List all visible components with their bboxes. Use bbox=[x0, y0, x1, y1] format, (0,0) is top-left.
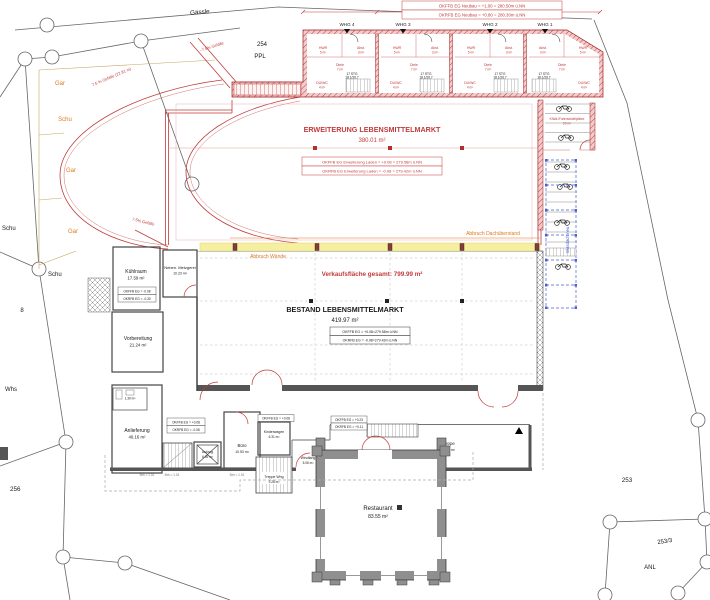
anlieferung-level2: OKRFB EG = -0.08 bbox=[172, 428, 200, 432]
aufzug-area: 6.39 m² bbox=[202, 455, 213, 459]
room-diele: Diele bbox=[484, 63, 492, 67]
glasdach-label: Glasdach neu bbox=[565, 226, 570, 253]
bicycle-icon bbox=[555, 220, 570, 225]
anlieferung-label: Anlieferung bbox=[124, 428, 150, 434]
treppe-level-box: OKFFB EG = +0.23 OKRFB EG = +0.11 bbox=[331, 416, 367, 430]
glass-roof-new: Glasdach neu bbox=[545, 159, 577, 309]
room-diele: Diele bbox=[558, 63, 566, 67]
ramp-and-garages: Gar Schu Gar Gar 7.5 % Gefälle (22.81 m)… bbox=[39, 38, 300, 269]
room-abst-area: 3 m² bbox=[432, 51, 438, 55]
kinderwagen-label: Kinderwagen bbox=[264, 430, 284, 434]
plot-anl: ANL bbox=[644, 565, 656, 571]
wc-area: 1.39 m² bbox=[125, 397, 136, 401]
erweiterung-title: ERWEITERUNG LEBENSMITTELMARKT bbox=[304, 125, 441, 134]
buero-label: Büro bbox=[237, 443, 247, 448]
restaurant-building: Restaurant 83.55 m² bbox=[312, 436, 450, 585]
anlieferung-level-box: OKFFB EG = +0.08 OKRFB EG = -0.08 bbox=[167, 418, 205, 433]
slope-bottom-label: 7.5% Gefälle bbox=[132, 216, 156, 227]
slope-curve-label: 7.5 % Gefälle (22.81 m) bbox=[91, 66, 132, 87]
bestand-right-wall bbox=[537, 251, 543, 390]
whg1-label: WHG 1 bbox=[537, 22, 553, 27]
room-hwr: HWR bbox=[467, 46, 476, 50]
room-duwc-area: 4 m² bbox=[393, 86, 399, 90]
erweiterung-level-box: OKFFB EG Erweiterung Laden = +0.08 = 279… bbox=[302, 157, 442, 175]
brh-note-2: Brh = 1.01 bbox=[165, 473, 180, 477]
kuehlraum-level1: OKFFB EG = -0.08 bbox=[123, 289, 150, 293]
room-hwr: HWR bbox=[579, 46, 588, 50]
bike-parking-label: KiWa-/Fahrradstellplätze bbox=[550, 117, 585, 121]
room-duwc: DU/WC bbox=[316, 81, 328, 85]
main-entrance-arrow bbox=[515, 427, 523, 434]
kinderwagen-area: 6.31 m² bbox=[269, 435, 280, 439]
room-diele: Diele bbox=[410, 63, 418, 67]
neighbor-wall-fragment bbox=[0, 447, 8, 460]
bestand-hall: BESTAND LEBENSMITTELMARKT 419.97 m² OKFF… bbox=[197, 251, 543, 434]
unit-stair bbox=[420, 79, 444, 92]
neubau-level-box: OKFFB EG Neubau = +1.00 = 280.50m ü.NN O… bbox=[402, 1, 562, 19]
abbruch-dach-label: Abbruch Dachüberstand bbox=[466, 231, 520, 237]
bicycle-icon bbox=[557, 106, 572, 111]
neubau-level-line2: OKRFB EG Neubau = +0.80 = 280.30m ü.NN bbox=[439, 13, 526, 18]
restaurant-area: 83.55 m² bbox=[368, 514, 388, 520]
kuehlraum-label: Kühlraum bbox=[125, 269, 146, 275]
metzgerei-label: Neben. Metzgerei bbox=[164, 265, 196, 270]
restaurant-label: Restaurant bbox=[363, 506, 393, 512]
demolition-zone: Abbruch Dachüberstand Abbruch Wände Verk… bbox=[200, 231, 540, 278]
garage-label-4: Gar bbox=[68, 229, 78, 235]
whg2-label: WHG 2 bbox=[482, 22, 498, 27]
aufzug-label: Aufzug bbox=[202, 450, 213, 454]
garage-label-2: Schu bbox=[58, 117, 72, 123]
room-diele-area: 7 m² bbox=[485, 68, 491, 72]
verkaufsflaeche-label: Verkaufsfläche gesamt: 799.99 m² bbox=[322, 271, 423, 278]
neubau-apartments: OKFFB EG Neubau = +1.00 = 280.50m ü.NN O… bbox=[232, 1, 603, 97]
whg4-label: WHG 4 bbox=[339, 22, 355, 27]
bicycle-icon bbox=[559, 135, 574, 140]
windfang-area: 5.06 m² bbox=[303, 461, 314, 465]
bicycle-icon bbox=[558, 184, 573, 189]
room-duwc-area: 4 m² bbox=[467, 86, 473, 90]
anlieferung-area: 40.16 m² bbox=[129, 435, 147, 440]
service-rooms: Kühlraum 17.59 m² OKFFB EG = -0.08 OKRFB… bbox=[88, 247, 532, 477]
bestand-area: 419.97 m² bbox=[331, 318, 358, 324]
neubau-level-line1: OKFFB EG Neubau = +1.00 = 280.50m ü.NN bbox=[439, 4, 525, 9]
room-diele-area: 7 m² bbox=[337, 68, 343, 72]
brh-note-3: Brh = 1.01 bbox=[230, 473, 245, 477]
erweiterung-hall: ERWEITERUNG LEBENSMITTELMARKT 380.01 m² … bbox=[165, 100, 595, 245]
treppe-level1: OKFFB EG = +0.23 bbox=[335, 418, 363, 422]
plot-253-3: 253/3 bbox=[657, 538, 673, 546]
parcel-number: 254 bbox=[257, 42, 268, 48]
buero-area: 10.53 m² bbox=[235, 450, 250, 454]
room-duwc: DU/WC bbox=[390, 81, 402, 85]
kinderwagen-level1: OKFFB EG = +0.08 bbox=[262, 417, 290, 421]
erweiterung-level-line2: OKRFB EG Erweiterung Laden = -0.08 = 279… bbox=[322, 169, 421, 174]
room-duwc-area: 4 m² bbox=[319, 86, 325, 90]
slope-top-label: ~7.5% Gefälle bbox=[199, 40, 225, 53]
room-abst: Abst. bbox=[539, 46, 547, 50]
windfang-label: Windfang bbox=[301, 456, 316, 460]
plot-8: 8 bbox=[20, 308, 24, 314]
abbruch-waende-label: Abbruch Wände bbox=[250, 254, 286, 260]
kuehlraum-area: 17.59 m² bbox=[128, 276, 146, 281]
room-abst: Abst. bbox=[431, 46, 439, 50]
bestand-level-line1: OKFFB EG = +0.08=279.58m ü.NN bbox=[342, 330, 398, 334]
bike-parking-area: 20 m² bbox=[563, 122, 571, 126]
room-duwc-area: 4 m² bbox=[581, 86, 587, 90]
room-buero bbox=[224, 412, 260, 468]
plot-schu-b: Schu bbox=[2, 226, 16, 232]
unit-stair bbox=[494, 79, 518, 92]
room-duwc: DU/WC bbox=[578, 81, 590, 85]
parcel-use: PPL bbox=[254, 54, 266, 60]
site-plan-drawing: Gässle 254 PPL 256 253 253/3 ANL 8 Whs S… bbox=[0, 0, 710, 600]
bicycle-icon bbox=[556, 264, 571, 269]
restaurant-column bbox=[397, 505, 402, 510]
anlieferung-level1: OKFFB EG = +0.08 bbox=[172, 420, 200, 424]
vorbereitung-label: Vorbereitung bbox=[124, 336, 153, 342]
bestand-title: BESTAND LEBENSMITTELMARKT bbox=[286, 305, 404, 314]
erweiterung-level-line1: OKFFB EG Erweiterung Laden = +0.08 = 279… bbox=[322, 160, 422, 165]
garage-label-1: Gar bbox=[55, 81, 65, 87]
plot-253: 253 bbox=[622, 477, 633, 484]
bestand-level-box: OKFFB EG = +0.08=279.58m ü.NN OKRFB EG =… bbox=[330, 327, 410, 344]
whg3-label: WHG 3 bbox=[395, 22, 411, 27]
unit-stair bbox=[346, 79, 370, 92]
room-diele-area: 7 m² bbox=[411, 68, 417, 72]
room-duwc: DU/WC bbox=[464, 81, 476, 85]
bestand-level-line2: OKRFB EG = -0.08=279.42m ü.NN bbox=[343, 339, 398, 343]
garage-label-3: Gar bbox=[66, 168, 76, 174]
kinderwagen-level-box: OKFFB EG = +0.08 bbox=[258, 415, 294, 422]
room-hwr-area: 5 m² bbox=[468, 51, 474, 55]
vorbereitung-area: 21.24 m² bbox=[130, 343, 148, 348]
brh-note-1: Brh = 1.01 bbox=[140, 473, 155, 477]
room-abst: Abst. bbox=[357, 46, 365, 50]
room-hwr-area: 5 m² bbox=[394, 51, 400, 55]
loading-dock-hatch bbox=[88, 278, 110, 312]
main-stair-run bbox=[367, 424, 418, 437]
erweiterung-area: 380.01 m² bbox=[358, 138, 385, 144]
bestand-bottom-wall bbox=[197, 385, 543, 391]
room-hwr: HWR bbox=[393, 46, 402, 50]
room-abst-area: 3 m² bbox=[358, 51, 364, 55]
kuehlraum-level-box: OKFFB EG = -0.08 OKRFB EG = -0.30 bbox=[118, 287, 156, 302]
treppe-whg-area: 9.28 m² bbox=[269, 480, 280, 484]
street-label: Gässle bbox=[190, 8, 211, 17]
room-hwr: HWR bbox=[319, 46, 328, 50]
kuehlraum-level2: OKRFB EG = -0.30 bbox=[123, 297, 151, 301]
metzgerei-area: 10.23 m² bbox=[173, 272, 188, 276]
room-diele: Diele bbox=[336, 63, 344, 67]
room-abst-area: 3 m² bbox=[540, 51, 546, 55]
room-abst-area: 3 m² bbox=[506, 51, 512, 55]
bicycle-icon bbox=[555, 164, 570, 169]
plot-schu-a: Schu bbox=[48, 272, 62, 278]
room-abst: Abst. bbox=[505, 46, 513, 50]
treppe-whg-label: Treppe Whg bbox=[264, 475, 283, 479]
room-diele-area: 7 m² bbox=[559, 68, 565, 72]
room-hwr-area: 5 m² bbox=[580, 51, 586, 55]
plot-whs: Whs bbox=[5, 387, 17, 393]
unit-stair bbox=[532, 79, 556, 92]
plot-256: 256 bbox=[10, 486, 21, 493]
treppe-level2: OKRFB EG = +0.11 bbox=[335, 425, 363, 429]
room-hwr-area: 5 m² bbox=[320, 51, 326, 55]
